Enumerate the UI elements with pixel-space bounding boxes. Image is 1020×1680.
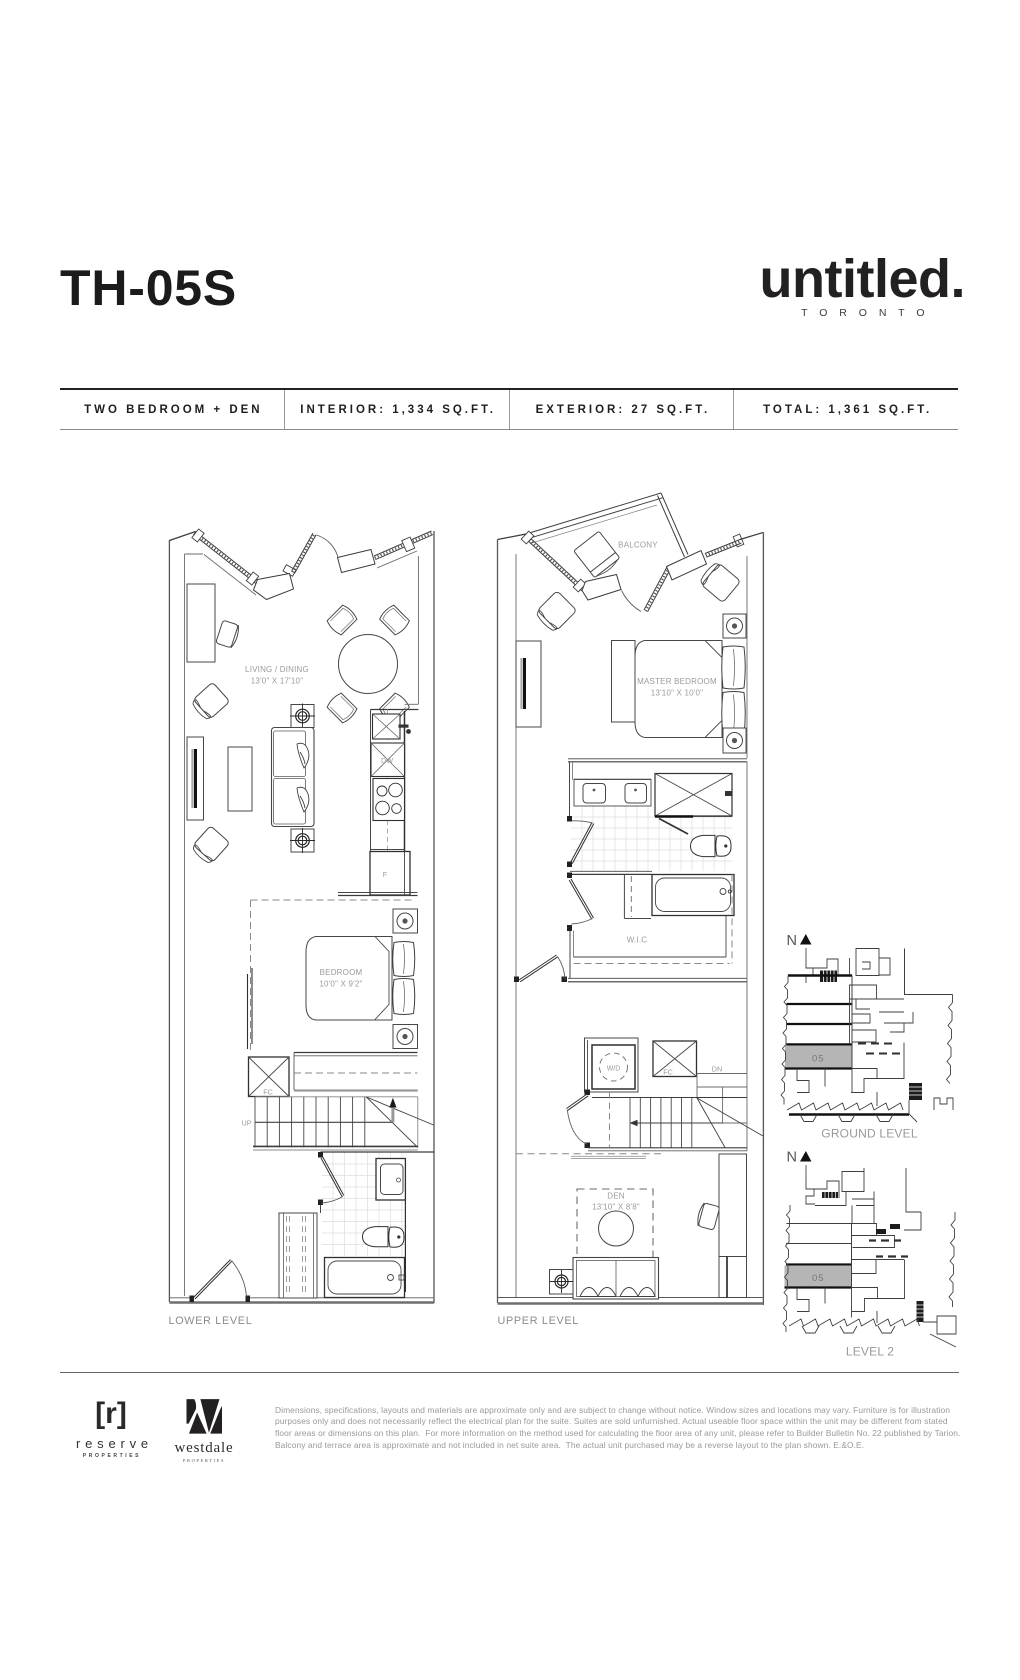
svg-text:BEDROOM: BEDROOM [320,968,363,977]
svg-text:DW: DW [381,756,393,765]
svg-text:MASTER BEDROOM: MASTER BEDROOM [637,677,717,686]
svg-text:GROUND LEVEL: GROUND LEVEL [821,1127,918,1141]
svg-text:W.I.C: W.I.C [627,936,648,945]
svg-text:LOWER LEVEL: LOWER LEVEL [169,1315,253,1327]
svg-text:LIVING / DINING: LIVING / DINING [245,665,309,674]
svg-text:05: 05 [812,1273,825,1284]
svg-text:N: N [787,1150,797,1166]
svg-text:13'0" X 17'10": 13'0" X 17'10" [251,677,303,686]
svg-text:BALCONY: BALCONY [618,541,658,550]
svg-text:05: 05 [812,1054,825,1065]
svg-text:FC: FC [663,1068,673,1077]
svg-text:FC: FC [263,1088,273,1097]
svg-text:N: N [787,933,797,949]
svg-text:DEN: DEN [607,1192,625,1201]
svg-text:F: F [383,870,388,879]
svg-text:UP: UP [242,1119,252,1128]
svg-text:13'10" X 10'0": 13'10" X 10'0" [651,689,703,698]
svg-text:UPPER LEVEL: UPPER LEVEL [498,1315,580,1327]
svg-text:10'0" X 9'2": 10'0" X 9'2" [319,980,362,989]
svg-text:LEVEL 2: LEVEL 2 [846,1345,894,1359]
svg-text:DN: DN [712,1065,722,1074]
svg-text:W/D: W/D [607,1066,621,1073]
svg-text:13'10" X 8'8": 13'10" X 8'8" [592,1203,640,1212]
